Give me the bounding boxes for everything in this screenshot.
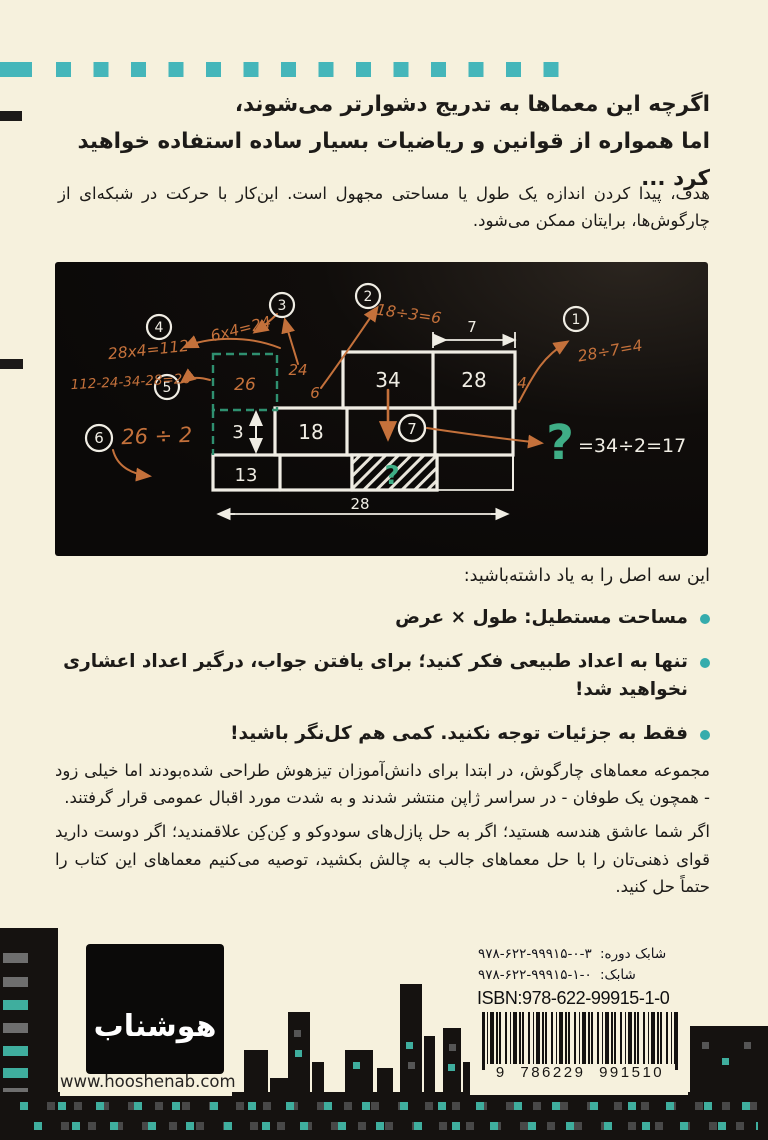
area-maze-diagram: 1 2 3 4 5 6 7 34 28 18 3 13 7 28 28÷7=4 …: [55, 262, 708, 556]
answer-equation: =34÷2=17: [578, 435, 686, 457]
cell-18: 18: [298, 420, 323, 444]
eq-step4: 28x4=112: [107, 337, 190, 363]
spine-dash: [3, 1000, 28, 1010]
step-circle-4: 4: [147, 315, 171, 339]
window-light: [449, 1044, 456, 1051]
answer-question-mark: ?: [546, 415, 574, 471]
barcode-guard: [482, 1012, 485, 1070]
teal-dash-row: [56, 62, 562, 77]
window-light: [408, 1062, 415, 1069]
heading-line-1: اگرچه این معماها به تدریج دشوارتر می‌شون…: [65, 87, 710, 124]
window-light: [722, 1058, 729, 1065]
principles-intro: این سه اصل را به یاد داشته‌باشید:: [60, 566, 710, 586]
window-light: [448, 1064, 455, 1071]
dim-bottom-28: 28: [350, 495, 369, 513]
principle-2: تنها به اعداد طبیعی فکر کنید؛ برای یافتن…: [58, 648, 688, 705]
isbn-latin-line: ISBN:978-622-99915-1-0: [477, 988, 669, 1009]
list-item: مساحت مستطیل: طول × عرض: [58, 604, 710, 633]
eq-step5: 112-24-34-28=26: [70, 371, 191, 393]
svg-text:3: 3: [278, 298, 287, 314]
list-item: فقط به جزئیات توجه نکنید. کمی هم کل‌نگر …: [58, 720, 710, 749]
bullet-dot: [700, 730, 710, 740]
isbn-number: ۹۷۸-۶۲۲-۹۹۹۱۵-۱-۰: [478, 967, 600, 983]
isbn-series-line: ۹۷۸-۶۲۲-۹۹۹۱۵-۰-۳ شابک دوره:: [478, 946, 690, 962]
window-light: [295, 1050, 302, 1057]
window-light: [294, 1030, 301, 1037]
building-silhouette: [244, 1050, 268, 1093]
building-silhouette: [690, 1026, 768, 1093]
skyline-base: [0, 1092, 768, 1140]
step-circle-1: 1: [564, 307, 588, 331]
window-light: [406, 1042, 413, 1049]
window-row: [20, 1102, 758, 1110]
cell-28: 28: [461, 368, 486, 392]
building-silhouette: [377, 1068, 393, 1093]
svg-text:4: 4: [155, 320, 164, 336]
black-dash-2: [0, 359, 23, 369]
cell-13: 13: [235, 465, 258, 486]
svg-text:1: 1: [572, 312, 581, 328]
intro-paragraph: هدف، پیدا کردن اندازه یک طول یا مساحتی م…: [58, 180, 710, 234]
svg-text:2: 2: [364, 289, 373, 305]
eq-step2: 18÷3=6: [375, 301, 442, 328]
unknown-question-mark: ?: [384, 461, 399, 491]
note-26: 26: [234, 375, 256, 395]
spine-dash: [3, 1023, 28, 1033]
window-row: [34, 1122, 758, 1130]
building-silhouette: [443, 1028, 461, 1093]
spine-dash: [3, 1068, 28, 1078]
ean-barcode: [482, 1012, 678, 1064]
chalkboard-puzzle-photo: 1 2 3 4 5 6 7 34 28 18 3 13 7 28 28÷7=4 …: [55, 262, 708, 556]
building-silhouette: [424, 1036, 435, 1093]
building-silhouette: [312, 1062, 324, 1093]
book-back-cover: اگرچه این معماها به تدریج دشوارتر می‌شون…: [0, 0, 768, 1140]
isbn-label: شابک:: [600, 967, 690, 983]
principles-list: مساحت مستطیل: طول × عرض تنها به اعداد طب…: [58, 604, 710, 764]
spine-dash: [3, 953, 28, 963]
dim-right-4: 4: [517, 374, 527, 392]
publisher-logo: هوشناب: [86, 944, 224, 1074]
window-light: [353, 1062, 360, 1069]
svg-text:6: 6: [94, 429, 104, 447]
window-light: [744, 1042, 751, 1049]
note-6: 6: [310, 384, 320, 402]
cell-34: 34: [375, 368, 400, 392]
dashed-helper-box: [213, 354, 277, 455]
description-paragraph-1: مجموعه معماهای چارگوش، در ابتدا برای دان…: [55, 757, 710, 811]
isbn-line: ۹۷۸-۶۲۲-۹۹۹۱۵-۱-۰ شابک:: [478, 967, 690, 983]
publisher-website: www.hooshenab.com: [60, 1072, 232, 1091]
building-silhouette: [345, 1050, 373, 1093]
barcode-number: 9 786229 991510: [474, 1064, 686, 1081]
step-circle-3: 3: [270, 293, 294, 317]
principle-3: فقط به جزئیات توجه نکنید. کمی هم کل‌نگر …: [230, 720, 688, 749]
description-paragraph-2: اگر شما عاشق هندسه هستید؛ اگر به حل پازل…: [55, 818, 710, 900]
dim-top-7: 7: [467, 318, 477, 336]
barcode-guard: [675, 1012, 678, 1070]
black-dash-1: [0, 111, 22, 121]
publisher-logo-text: هوشناب: [94, 1009, 217, 1044]
isbn-series-label: شابک دوره:: [600, 946, 690, 962]
svg-text:7: 7: [407, 420, 417, 438]
step-circle-7: 7: [399, 415, 425, 441]
bullet-dot: [700, 658, 710, 668]
description-block: مجموعه معماهای چارگوش، در ابتدا برای دان…: [55, 757, 710, 900]
bullet-dot: [700, 614, 710, 624]
isbn-series-number: ۹۷۸-۶۲۲-۹۹۹۱۵-۰-۳: [478, 946, 600, 962]
cell-3: 3: [232, 422, 243, 443]
spine-dash: [3, 1046, 28, 1056]
principle-1: مساحت مستطیل: طول × عرض: [395, 604, 688, 633]
step-circle-6: 6: [86, 425, 112, 451]
building-silhouette: [400, 984, 422, 1093]
window-light: [702, 1042, 709, 1049]
eq-step6: 26 ÷ 2: [121, 423, 193, 449]
eq-step3: 6x4=24: [209, 313, 273, 345]
note-24: 24: [288, 361, 307, 379]
eq-step1: 28÷7=4: [576, 337, 644, 366]
list-item: تنها به اعداد طبیعی فکر کنید؛ برای یافتن…: [58, 648, 710, 705]
solution-arrows: [113, 308, 567, 476]
teal-dash-edge: [0, 62, 32, 77]
spine-dash: [3, 977, 28, 987]
building-silhouette: [270, 1078, 288, 1093]
